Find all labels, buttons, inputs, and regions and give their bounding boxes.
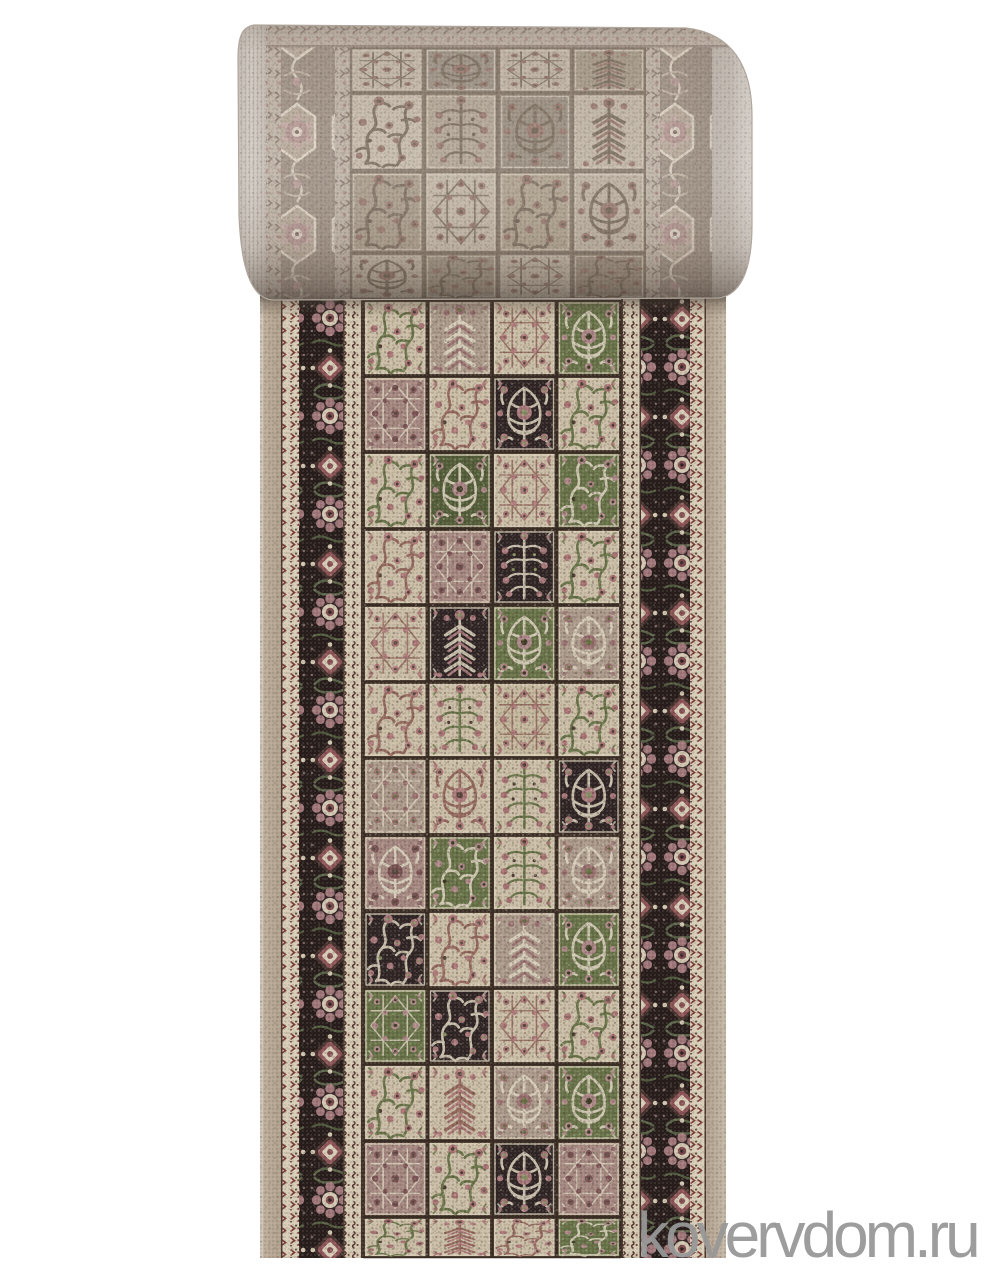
- svg-text:kovervdom.ru: kovervdom.ru: [637, 1199, 977, 1271]
